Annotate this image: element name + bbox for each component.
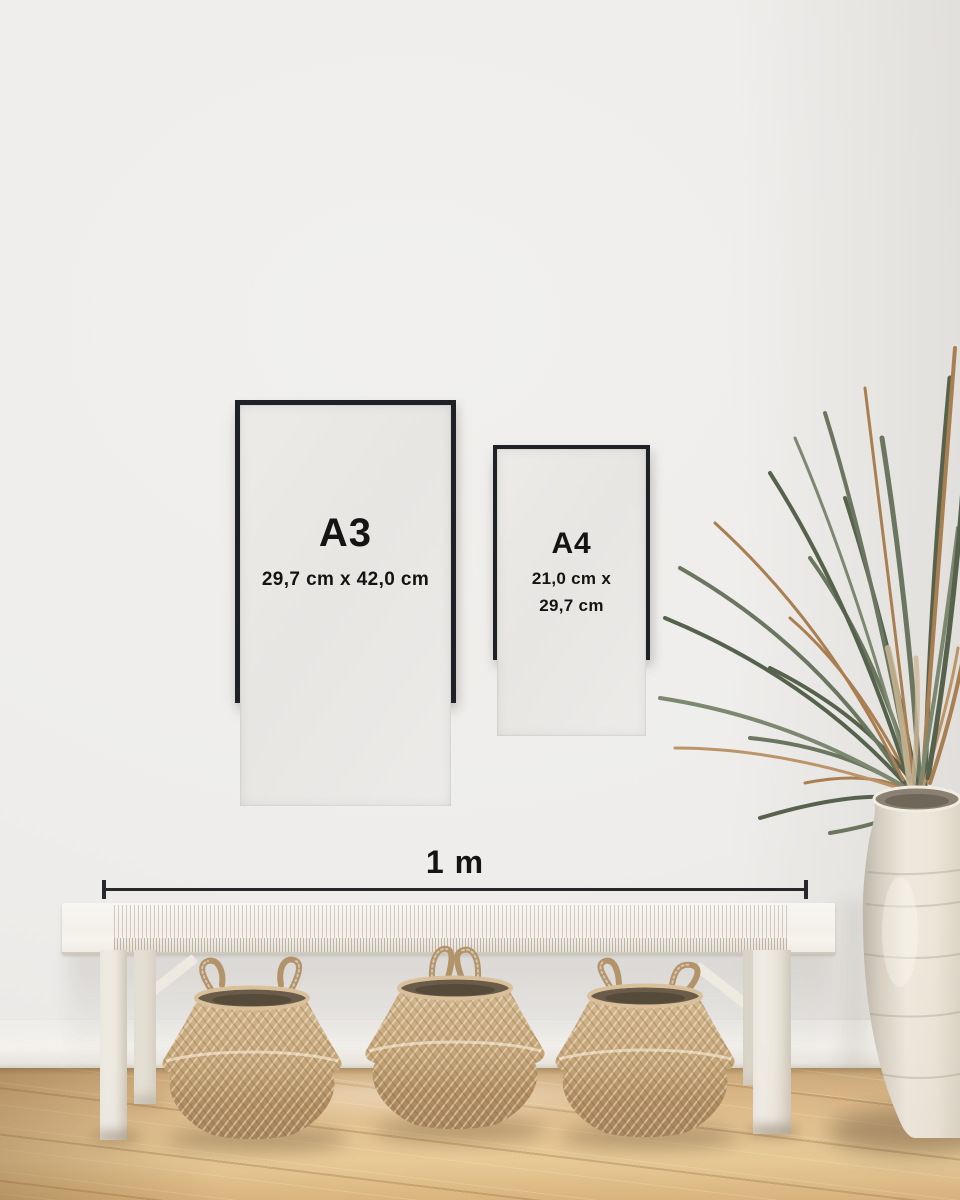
frame-a3-label: A3 bbox=[319, 513, 372, 553]
frame-a3-dimensions: 29,7 cm x 42,0 cm bbox=[262, 569, 429, 591]
bench-leg-shadow bbox=[745, 1126, 801, 1137]
bench-leg-shadow bbox=[92, 1132, 140, 1142]
basket-middle bbox=[355, 945, 555, 1160]
room-scene: A3 29,7 cm x 42,0 cm A4 21,0 cm x 29,7 c… bbox=[0, 0, 960, 1200]
frame-a4-dimensions: 21,0 cm x 29,7 cm bbox=[532, 565, 611, 619]
vase-mouth-interior bbox=[885, 794, 949, 808]
bench-leg-front-right bbox=[753, 950, 791, 1134]
frame-a4-dimensions-line1: 21,0 cm x bbox=[532, 565, 611, 592]
scale-bar-left-cap bbox=[102, 880, 106, 899]
palm-plant bbox=[620, 318, 960, 843]
scale-bar: 1 m bbox=[102, 844, 808, 902]
scale-bar-right-cap bbox=[804, 880, 808, 899]
bench-weave-top bbox=[114, 905, 787, 938]
frame-a3: A3 29,7 cm x 42,0 cm bbox=[235, 400, 456, 703]
basket-interior-dark bbox=[212, 994, 292, 1006]
bench-leg-front-left bbox=[100, 950, 127, 1140]
scale-bar-label: 1 m bbox=[102, 844, 808, 881]
frame-a3-paper: A3 29,7 cm x 42,0 cm bbox=[240, 405, 451, 806]
frame-a4-label: A4 bbox=[552, 529, 592, 559]
vase-highlight bbox=[882, 877, 918, 987]
basket-interior-dark bbox=[415, 984, 495, 996]
palm-fronds bbox=[660, 348, 960, 833]
basket-right bbox=[545, 953, 745, 1168]
basket-interior-dark bbox=[605, 992, 685, 1004]
scale-bar-line bbox=[102, 888, 808, 891]
vase bbox=[860, 782, 960, 1144]
frame-a4-dimensions-line2: 29,7 cm bbox=[532, 592, 611, 619]
basket-left bbox=[152, 955, 352, 1170]
